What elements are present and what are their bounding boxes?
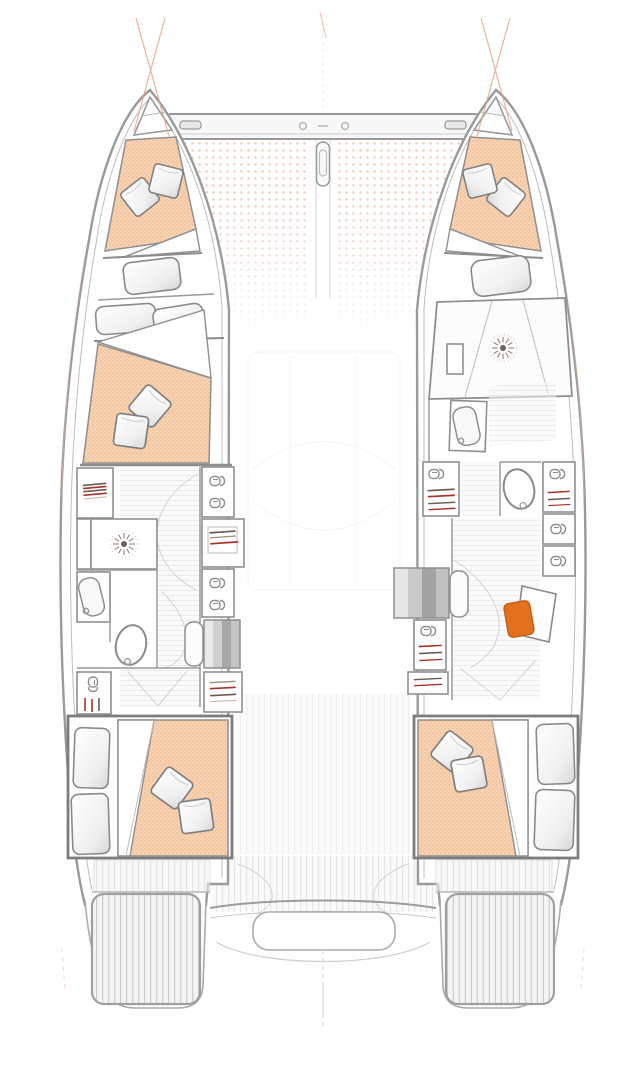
cockpit-floor — [236, 694, 410, 854]
berth-cushion — [534, 789, 575, 850]
catamaran-floor-plan — [0, 0, 617, 1080]
berth-cushion — [71, 793, 110, 854]
step-landing — [450, 571, 468, 617]
stbd-companionway-steps — [394, 568, 468, 618]
aft-cockpit — [210, 856, 436, 1028]
port-aft-cabin — [68, 716, 232, 858]
shelf-locker — [204, 672, 242, 712]
berth-cushion — [536, 723, 575, 784]
desk-stool — [503, 600, 535, 638]
berth-cushion — [73, 727, 110, 788]
stbd-aft-cabin — [414, 716, 578, 858]
forestay-line — [320, 12, 326, 112]
shower-seat — [447, 344, 463, 374]
locker — [202, 467, 234, 517]
wardrobe — [77, 468, 113, 518]
locker — [543, 546, 575, 576]
shelf-locker — [408, 672, 448, 694]
locker — [543, 514, 575, 544]
corridor-floor — [489, 381, 556, 446]
port-companionway-steps — [185, 620, 240, 668]
shelf-column — [77, 519, 91, 569]
catamaran-floor-plan-page — [0, 0, 617, 1080]
berth-cushion — [470, 255, 532, 298]
saloon-ghost-outline — [248, 352, 400, 590]
beam-fitting-port — [180, 121, 201, 129]
stbd-berth — [470, 255, 532, 298]
berth-cushion — [122, 257, 181, 296]
beam-fitting-starboard — [445, 121, 466, 129]
stbd-lockers-aft — [408, 620, 448, 694]
wardrobe — [77, 672, 111, 714]
forward-crossbeam — [166, 114, 480, 139]
locker — [202, 569, 234, 617]
step-landing — [185, 622, 203, 666]
tender-platform — [253, 912, 395, 950]
bow-roller-fitting — [317, 142, 330, 186]
